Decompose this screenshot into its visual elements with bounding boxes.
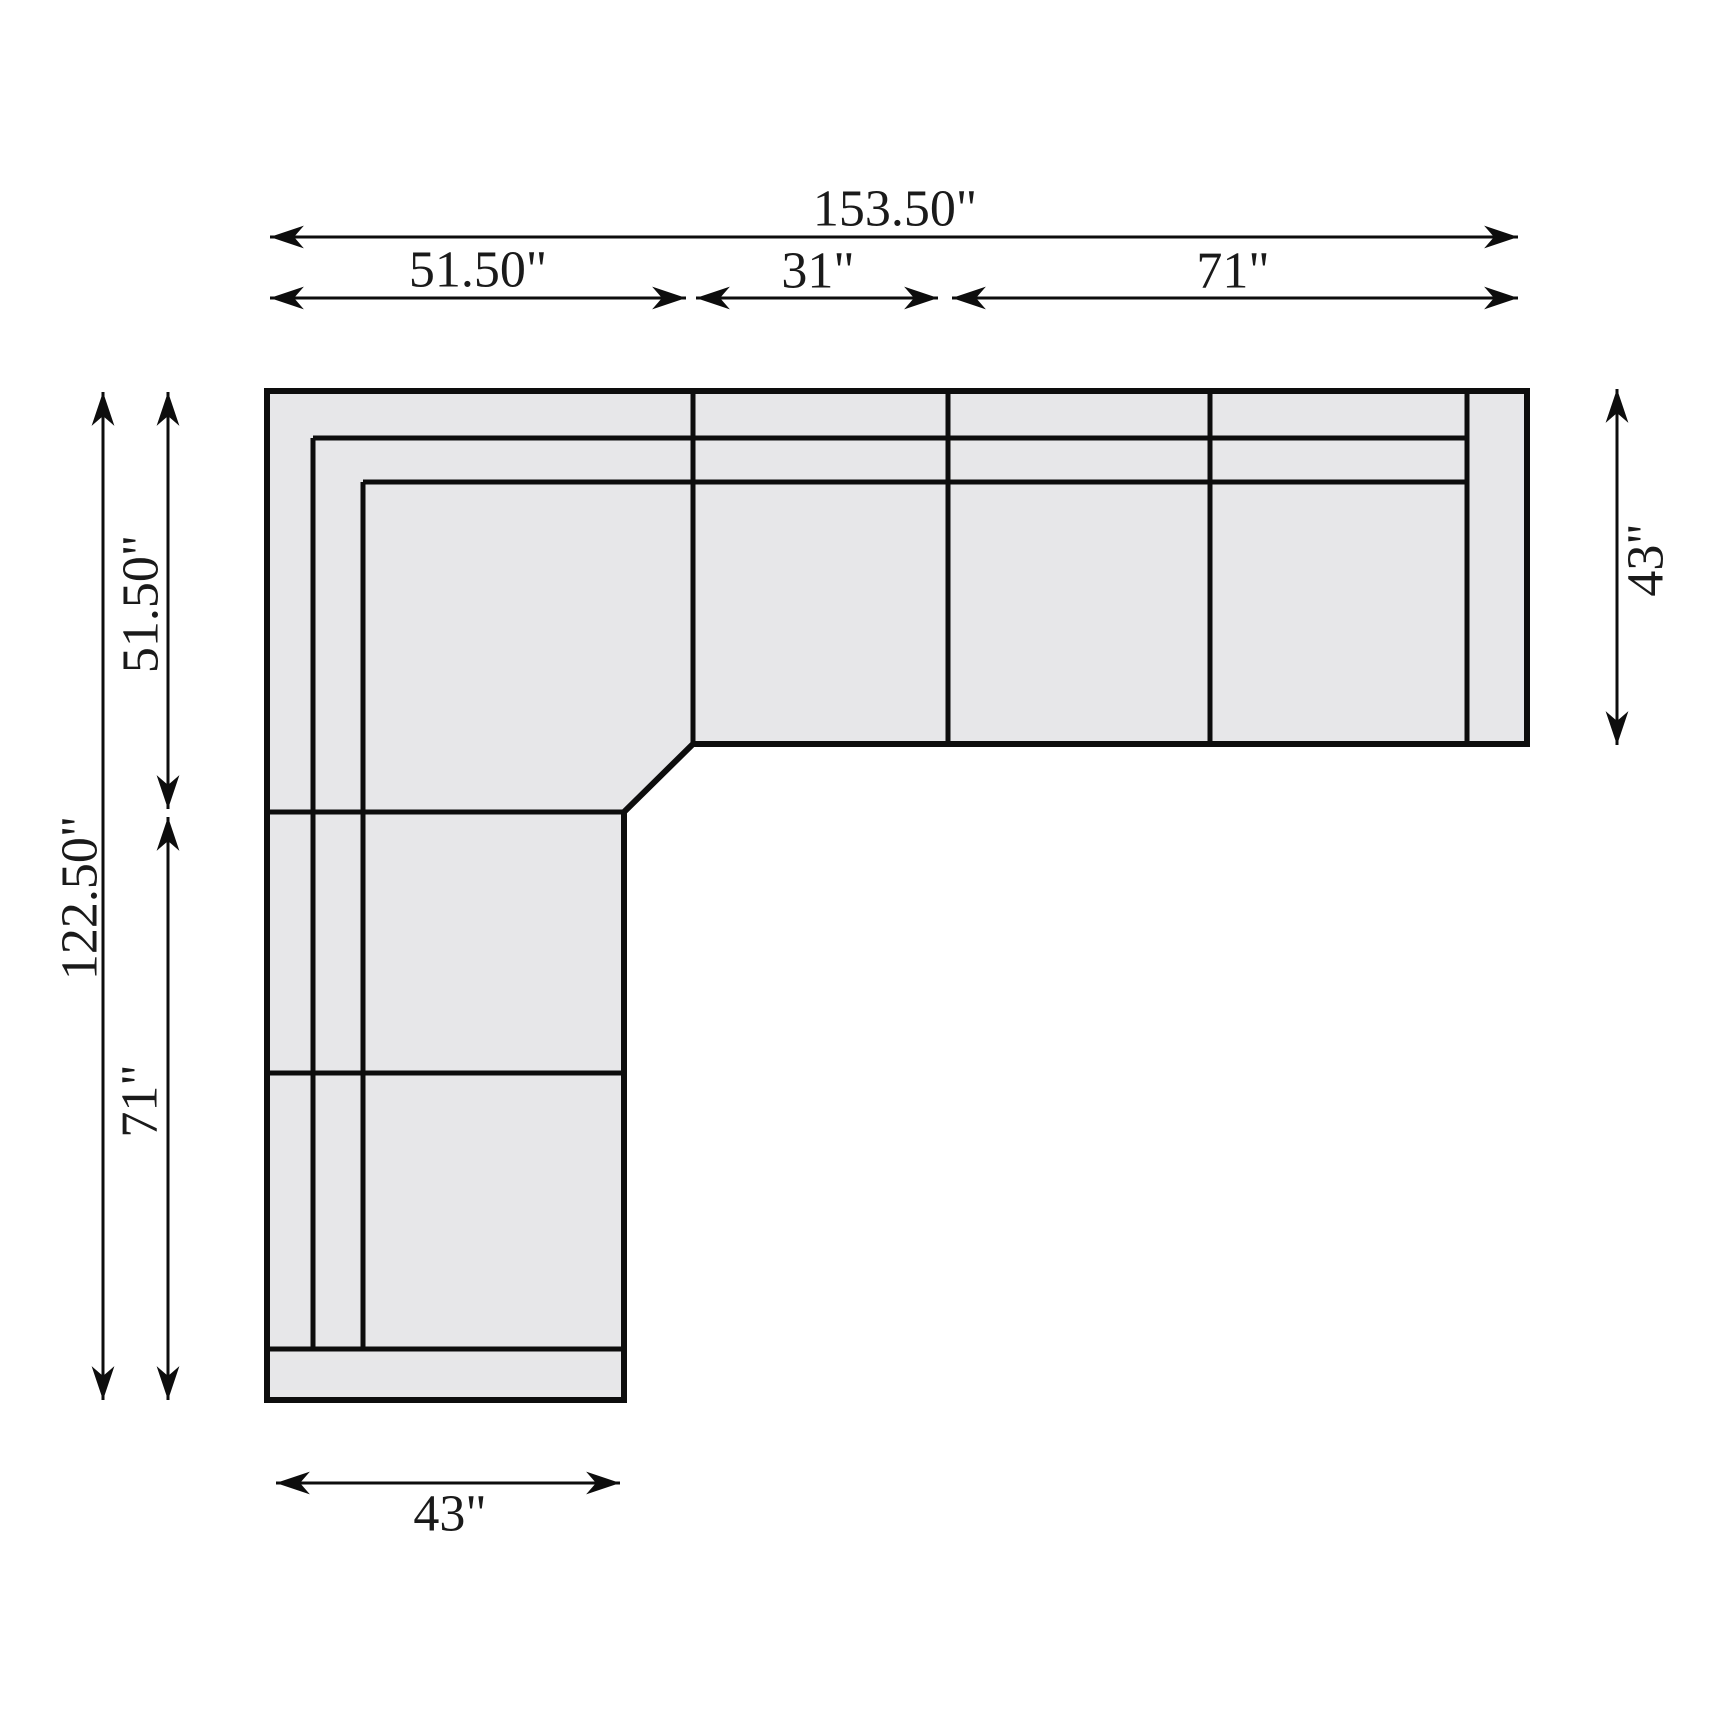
- dim-label-corner-depth: 51.50": [113, 535, 170, 673]
- dim-label-leg-width: 43": [413, 1486, 486, 1543]
- dim-label-leg-length: 71": [112, 1064, 169, 1137]
- dim-label-chair-width: 31": [781, 243, 854, 300]
- dim-label-loveseat-width: 71": [1196, 243, 1269, 300]
- diagram-page: 153.50"51.50"31"71"122.50"51.50"71"43"43…: [0, 0, 1726, 1726]
- sofa-shape: [267, 391, 1527, 1400]
- sofa-outline: [267, 391, 1527, 1400]
- sectional-sofa-dimension-diagram: 153.50"51.50"31"71"122.50"51.50"71"43"43…: [0, 0, 1726, 1726]
- dim-label-overall-depth: 122.50": [52, 816, 109, 980]
- dim-label-overall-width: 153.50": [813, 181, 977, 238]
- dim-label-corner-width: 51.50": [409, 242, 547, 299]
- dim-label-right-depth: 43": [1618, 523, 1675, 596]
